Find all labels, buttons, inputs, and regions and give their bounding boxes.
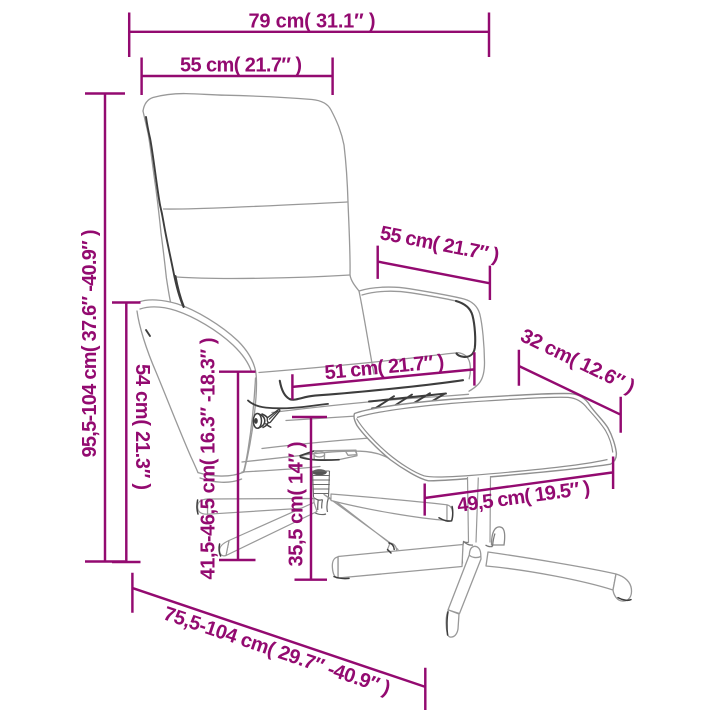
svg-text:41,5-46,5 cm( 16.3″ -18.3″ ): 41,5-46,5 cm( 16.3″ -18.3″ ) — [198, 338, 220, 580]
svg-text:79 cm( 31.1″ ): 79 cm( 31.1″ ) — [249, 11, 376, 33]
svg-text:35,5 cm( 14″ ): 35,5 cm( 14″ ) — [286, 442, 308, 567]
svg-text:54 cm( 21.3″ ): 54 cm( 21.3″ ) — [131, 364, 153, 490]
svg-text:95,5-104 cm( 37.6″ -40.9″ ): 95,5-104 cm( 37.6″ -40.9″ ) — [79, 230, 101, 458]
svg-text:55 cm( 21.7″ ): 55 cm( 21.7″ ) — [180, 55, 302, 77]
